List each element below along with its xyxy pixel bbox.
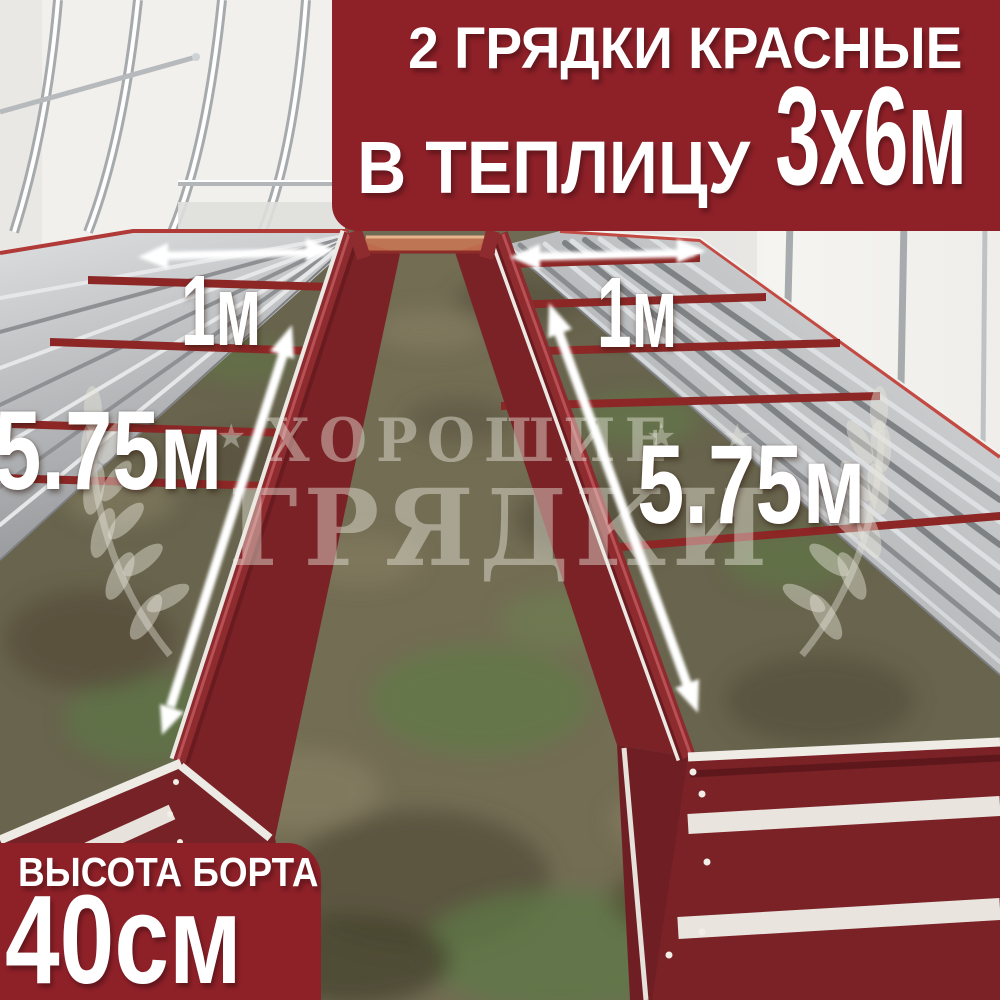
right-bed-length-label: 5.75м <box>637 429 866 541</box>
top-promo-banner: 2 ГРЯДКИ КРАСНЫЕ В ТЕПЛИЦУ 3х6м <box>332 0 1000 231</box>
banner-size-value: 3х6м <box>775 66 966 206</box>
banner-subtitle: В ТЕПЛИЦУ <box>357 131 750 205</box>
watermark-line1: ХОРОШИЕ <box>267 411 653 471</box>
board-height-value: 40см <box>5 877 242 1000</box>
left-bed-length-label: 5.75м <box>0 395 223 507</box>
greenhouse-left-wall <box>0 0 345 260</box>
product-photo-card: ХОРОШИЕ ГРЯДКИ ★ ★ ★ <box>0 0 1000 1000</box>
bottom-promo-banner: ВЫСОТА БОРТА 40см <box>0 843 321 1000</box>
right-bed-width-label: 1м <box>597 263 677 363</box>
left-bed-width-label: 1м <box>181 261 261 361</box>
